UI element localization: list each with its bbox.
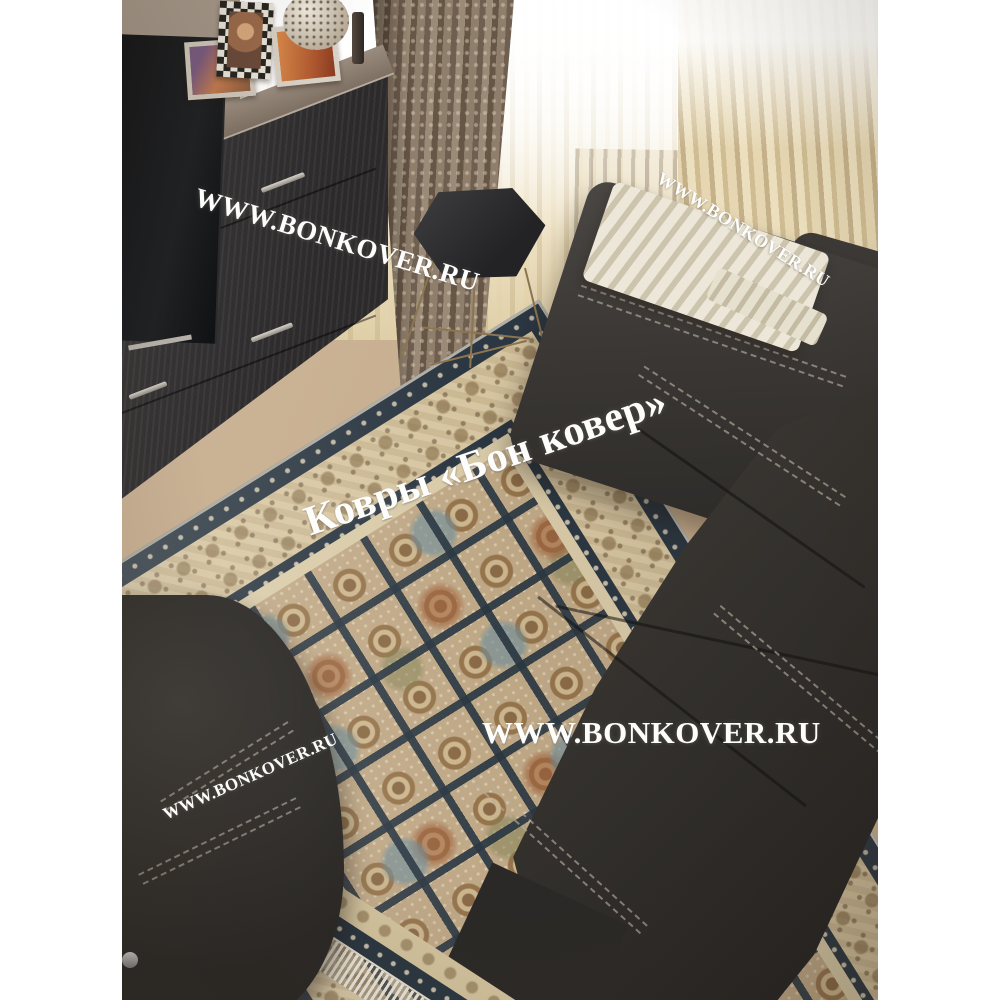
product-photo-canvas: WWW.BONKOVER.RU WWW.BONKOVER.RU Ковры «Б… (0, 0, 1000, 1000)
living-room-photo: WWW.BONKOVER.RU WWW.BONKOVER.RU Ковры «Б… (122, 0, 878, 1000)
framed-photo (227, 11, 264, 69)
checkered-picture-frame (216, 1, 274, 80)
watermark-site-bottom: WWW.BONKOVER.RU (482, 715, 821, 751)
candlestick (352, 12, 364, 64)
chair-caster-foot (122, 952, 138, 968)
